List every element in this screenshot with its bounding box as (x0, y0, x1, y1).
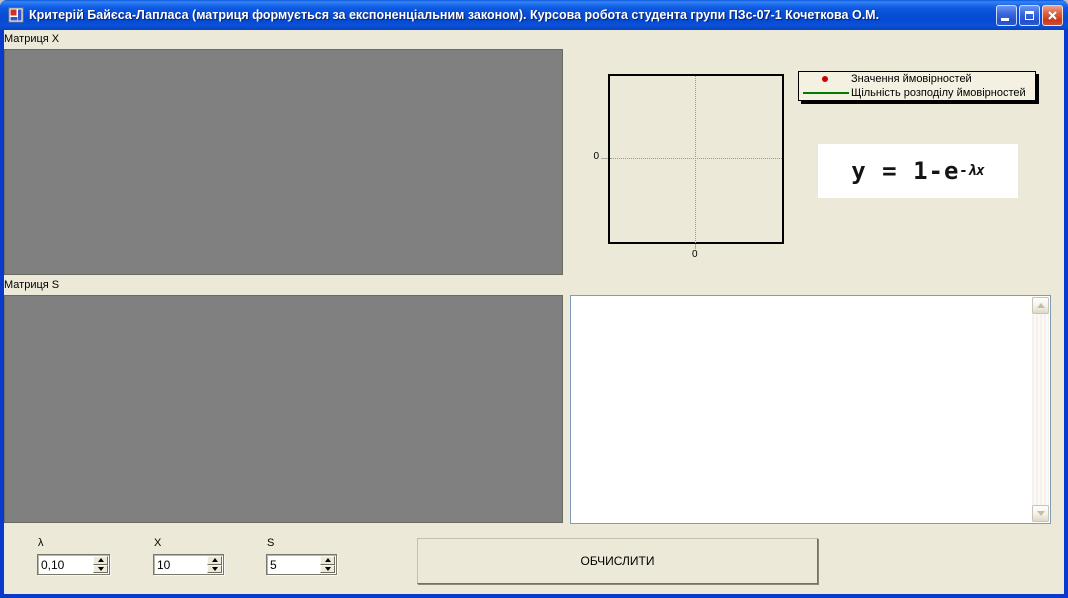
lambda-spin-up-button[interactable] (93, 556, 108, 565)
matrix-x-grid[interactable] (4, 49, 563, 275)
scroll-up-button[interactable] (1032, 297, 1049, 314)
legend-item-probability-values: Значення ймовірностей (799, 72, 1035, 86)
app-window: Критерій Байєса-Лапласа (матриця формуєт… (0, 0, 1068, 598)
client-area: Матриця X Матриця S 0 0 Значення ймовірн… (4, 30, 1064, 594)
spinner-up-icon (325, 558, 331, 562)
red-dot-icon (822, 76, 828, 82)
spinner-down-icon (98, 567, 104, 571)
lambda-label: λ (38, 537, 44, 549)
spinner-up-icon (98, 558, 104, 562)
y-axis-tick (601, 158, 608, 159)
maximize-icon (1025, 11, 1034, 20)
results-textbox[interactable] (570, 295, 1051, 524)
close-icon (1047, 10, 1058, 21)
formula-base: y = 1-e (851, 157, 959, 185)
s-spin-down-button[interactable] (320, 565, 335, 574)
compute-button[interactable]: ОБЧИСЛИТИ (417, 538, 818, 584)
spinner-up-icon (212, 558, 218, 562)
app-icon (8, 7, 24, 23)
x-spin-down-button[interactable] (207, 565, 222, 574)
x-stepper (153, 554, 224, 575)
lambda-input[interactable] (41, 557, 92, 572)
green-line-icon (803, 92, 849, 94)
y-axis-zero-label: 0 (589, 151, 599, 162)
close-button[interactable] (1042, 5, 1063, 26)
s-spin-up-button[interactable] (320, 556, 335, 565)
window-title: Критерій Байєса-Лапласа (матриця формуєт… (29, 8, 996, 22)
title-bar[interactable]: Критерій Байєса-Лапласа (матриця формуєт… (0, 0, 1068, 30)
matrix-s-grid[interactable] (4, 295, 563, 523)
x-spin-up-button[interactable] (207, 556, 222, 565)
s-label: S (267, 537, 274, 549)
formula-exponent: -λx (959, 163, 984, 179)
legend-item-density: Щільність розподілу ймовірностей (799, 86, 1035, 100)
legend-label: Щільність розподілу ймовірностей (851, 87, 1026, 99)
probability-chart (608, 74, 784, 244)
matrix-s-label: Матриця S (4, 279, 59, 291)
minimize-button[interactable] (996, 5, 1017, 26)
lambda-spin-down-button[interactable] (93, 565, 108, 574)
chart-legend: Значення ймовірностей Щільність розподіл… (798, 71, 1036, 101)
matrix-x-label: Матриця X (4, 33, 59, 45)
x-input[interactable] (157, 557, 206, 572)
x-label: X (154, 537, 161, 549)
results-text (574, 298, 1030, 521)
scroll-down-button[interactable] (1032, 505, 1049, 522)
chart-vertical-gridline (695, 76, 696, 247)
spinner-down-icon (212, 567, 218, 571)
s-stepper (266, 554, 337, 575)
vertical-scrollbar[interactable] (1032, 297, 1049, 522)
maximize-button[interactable] (1019, 5, 1040, 26)
lambda-stepper (37, 554, 110, 575)
formula-display: y = 1-e-λx (818, 144, 1018, 198)
spinner-down-icon (325, 567, 331, 571)
s-input[interactable] (270, 557, 319, 572)
x-axis-zero-label: 0 (692, 249, 698, 260)
chevron-down-icon (1037, 511, 1045, 516)
chevron-up-icon (1037, 303, 1045, 308)
chart-horizontal-gridline (610, 158, 782, 159)
minimize-icon (1001, 18, 1009, 21)
legend-label: Значення ймовірностей (851, 73, 972, 85)
